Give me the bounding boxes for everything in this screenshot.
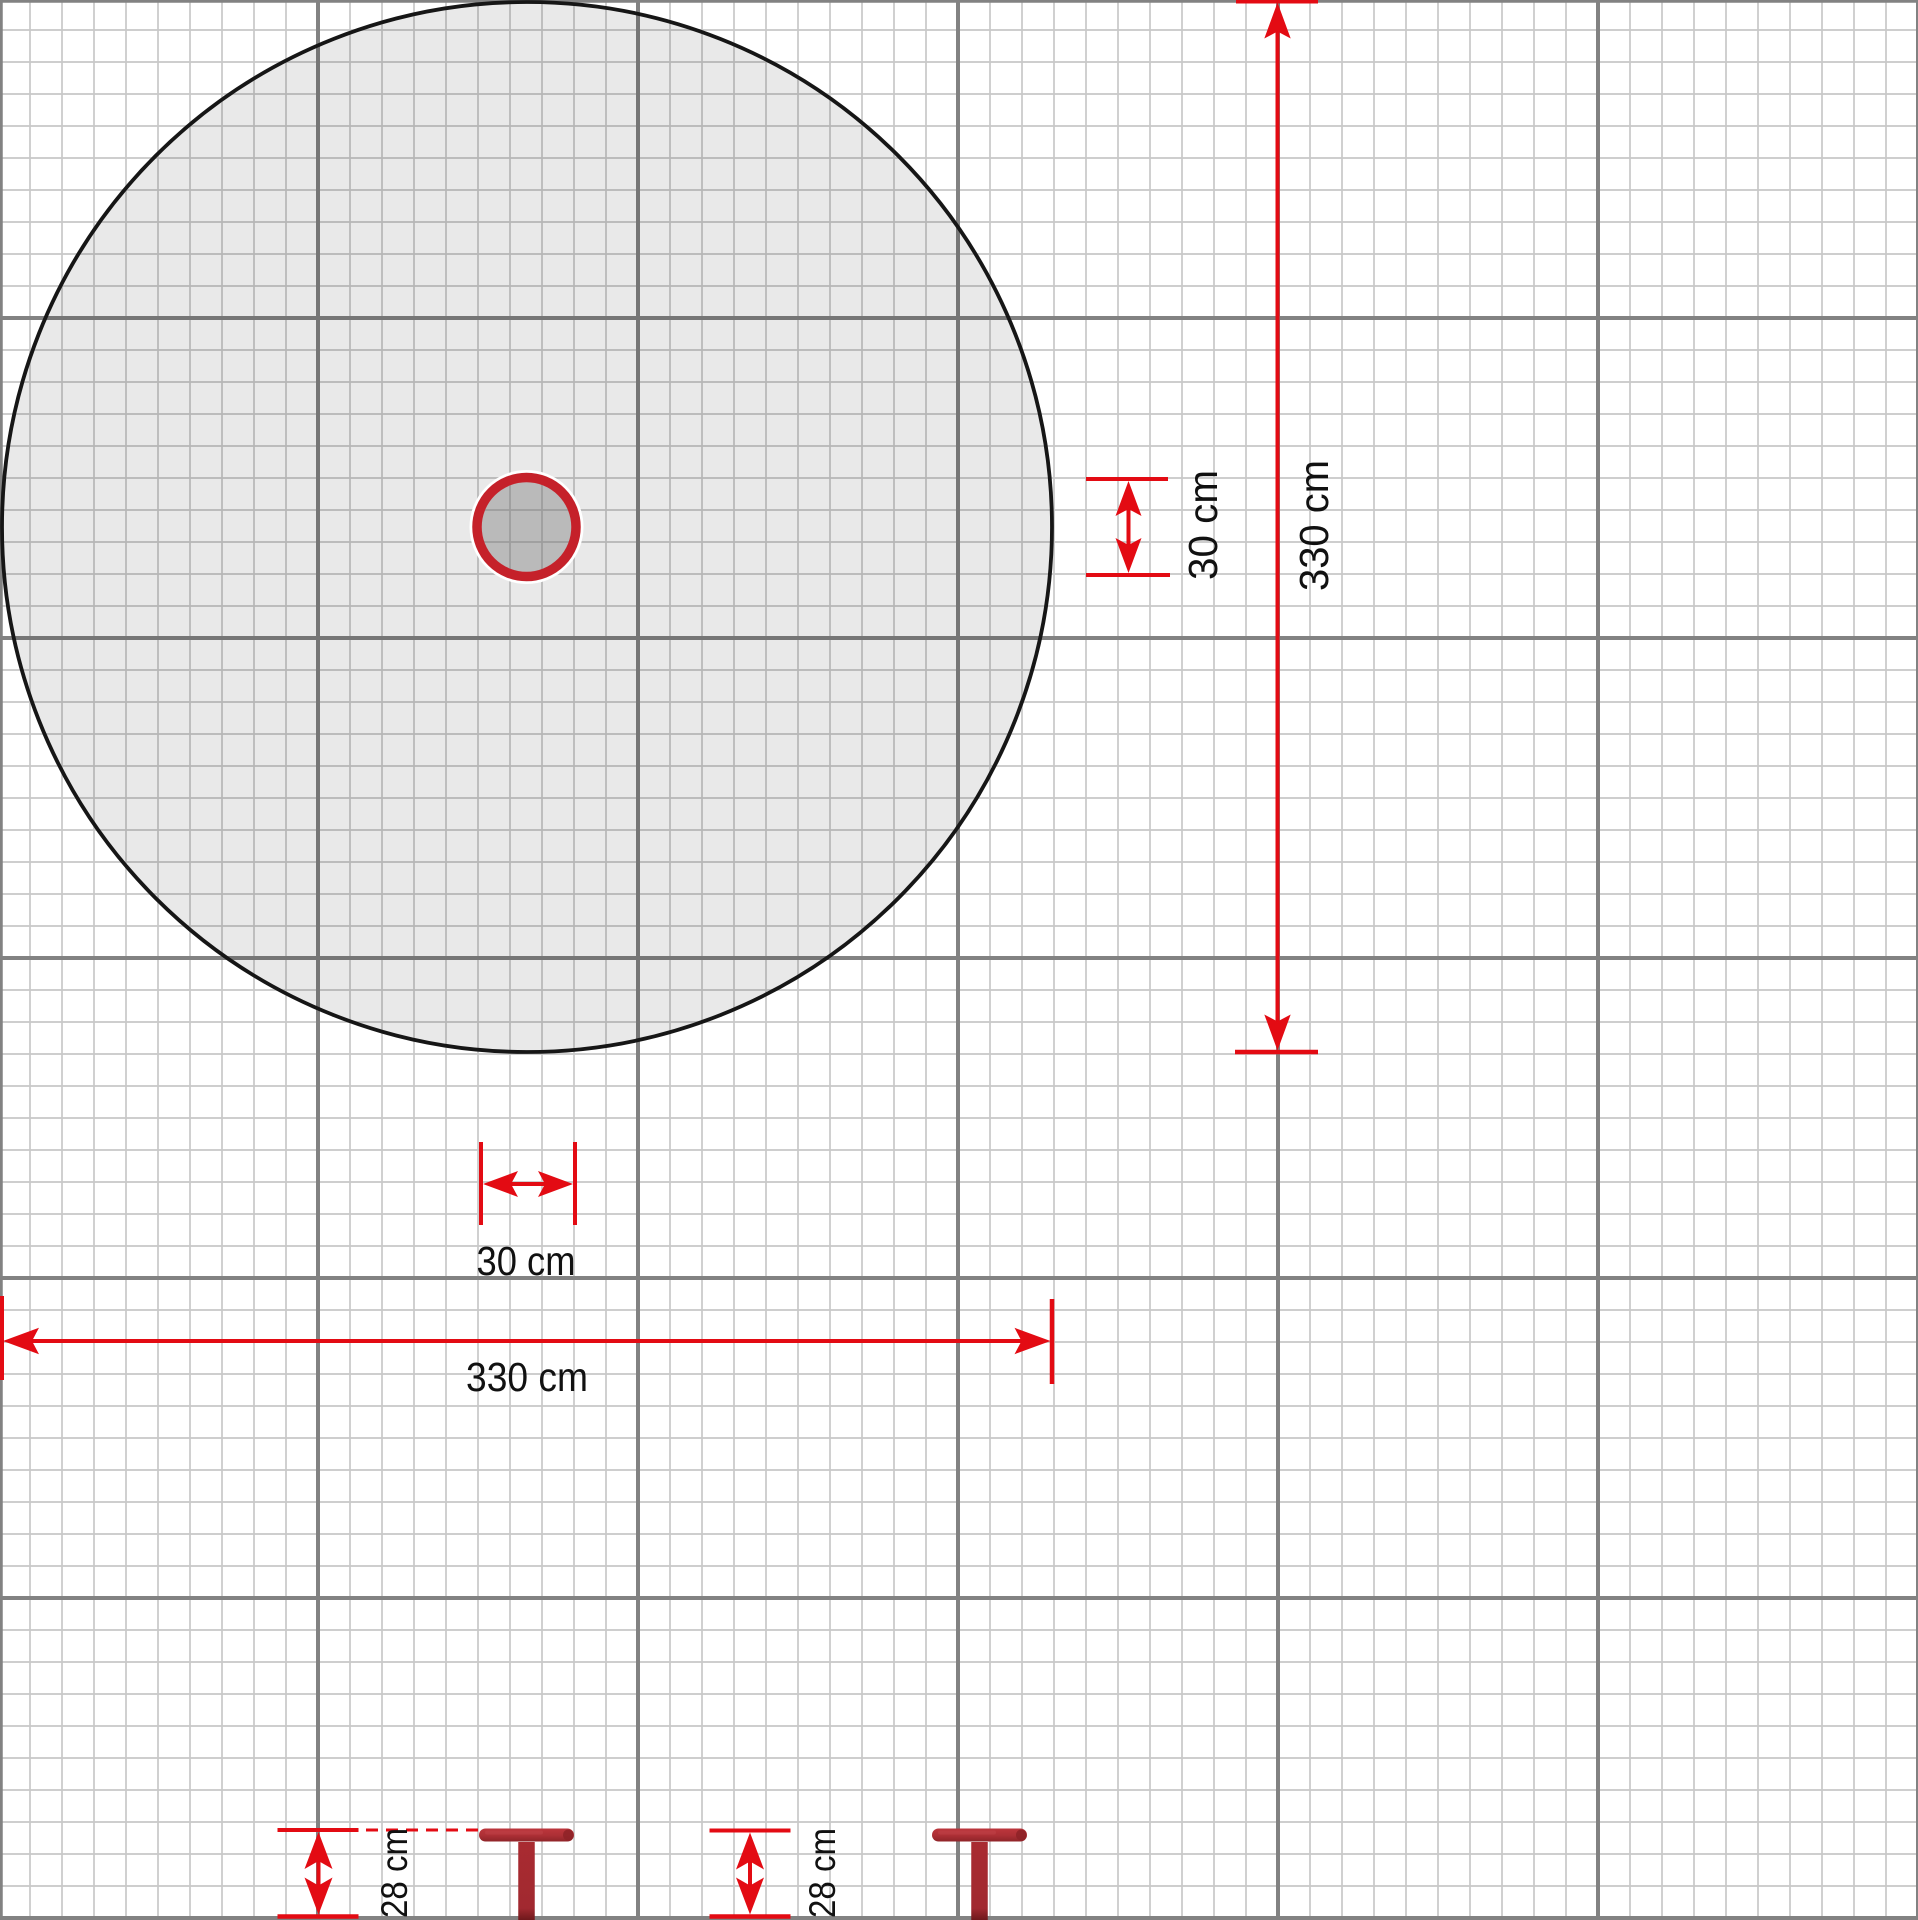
svg-text:330 cm: 330 cm [1291, 460, 1337, 591]
svg-text:30 cm: 30 cm [1180, 470, 1226, 580]
svg-text:30 cm: 30 cm [477, 1238, 576, 1284]
svg-text:330 cm: 330 cm [466, 1354, 588, 1400]
svg-text:28 cm: 28 cm [374, 1828, 415, 1918]
svg-text:28 cm: 28 cm [802, 1828, 843, 1918]
